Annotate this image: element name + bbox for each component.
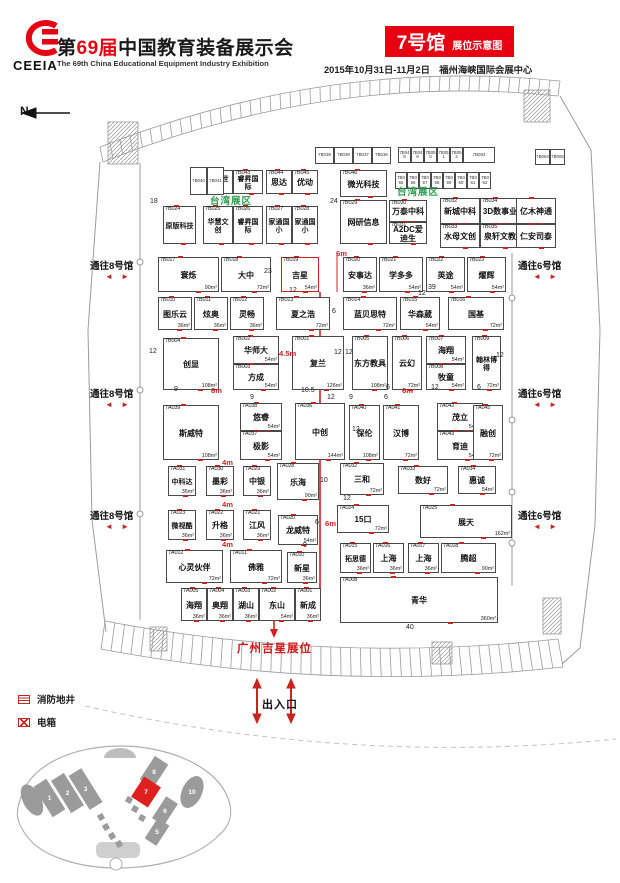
booth-7B033: 7B033水母文创	[440, 224, 480, 248]
mini-booth-7B059: 7B059	[443, 172, 455, 189]
overview-hall-label: 8	[152, 769, 156, 776]
booth-7B032: 7B032新城中科	[440, 198, 480, 224]
booth-7A011: 7A011佛雅72m²	[230, 550, 282, 583]
booth-7A016: 7A016上海36m²	[373, 543, 404, 573]
booth-7B023: 7B023燿辉54m²	[467, 257, 506, 292]
mini-booth-7B036: 7B036	[372, 147, 391, 164]
booth-7A031: 7A031中科达36m²	[168, 466, 196, 496]
booth-7B043: 7B043睿昇国际	[233, 170, 263, 194]
booth-7A003: 7A003湖山36m²	[233, 588, 259, 621]
booth-7A024: 7A02415口72m²	[337, 505, 389, 533]
mini-booth-7B052: 7B052	[450, 147, 463, 163]
mini-booth-7B039: 7B039	[315, 147, 334, 164]
booth-7A036: 7A036中创144m²	[295, 403, 345, 460]
booth-7A028: 7A028乐海90m²	[277, 463, 319, 500]
corridor-label-left: 通往8号馆	[90, 508, 133, 522]
booth-7A023: 7A023微视酷36m²	[168, 510, 196, 540]
dimension-label: 23	[264, 268, 272, 275]
dimension-label: 6	[386, 384, 390, 391]
corridor-label-left: 通往8号馆	[90, 258, 133, 272]
dimension-label: 6m	[325, 519, 336, 528]
dimension-label: 12	[343, 495, 351, 502]
booth-7A022: 7A022升格36m²	[206, 510, 234, 540]
booth-7A032: 7A032三和72m²	[340, 463, 384, 495]
overview-hall-label: 2	[66, 790, 70, 797]
booth-tw: 亿木神通	[516, 198, 556, 224]
dimension-label: 9	[250, 394, 254, 401]
booth-7B013: 7B013夏之浩72m²	[276, 297, 330, 330]
corridor-arrows-icon: ◄ ►	[105, 522, 132, 531]
booth-7A039: 7A039斯威特108m²	[163, 405, 219, 460]
booth-7A018: 7A018腾超90m²	[441, 543, 496, 573]
overview-hall-shape	[108, 832, 116, 840]
dimension-label: 12	[149, 348, 157, 355]
mini-booth-7B061: 7B061	[467, 172, 479, 189]
dimension-label: 6m	[336, 249, 347, 258]
legend: 消防地井 电箱	[18, 692, 75, 738]
booth-7B024: 7B024原版科技	[163, 206, 196, 244]
dimension-label: 6	[477, 384, 481, 391]
dimension-label: 24	[330, 198, 338, 205]
jixing-booth-callout: 广州吉星展位	[237, 640, 312, 656]
electric-box-icon	[18, 718, 30, 727]
corridor-arrows-icon: ◄ ►	[533, 400, 560, 409]
dimension-label: 12	[289, 287, 297, 294]
booth-7A025: 7A025展天162m²	[420, 505, 512, 538]
booth-7A038: 7A038悠睿54m²	[240, 403, 282, 431]
booth-7A010: 7A010新星36m²	[287, 552, 317, 583]
booth-7A021: 7A021江风36m²	[243, 510, 271, 540]
dimension-label: 6m	[402, 386, 413, 395]
dimension-label: 12	[418, 290, 426, 297]
booth-7A005: 7A005海翔36m²	[181, 588, 207, 621]
corridor-arrows-icon: ◄ ►	[105, 400, 132, 409]
mini-booth-7B038: 7B038	[334, 147, 353, 164]
corridor-arrows-icon: ◄ ►	[533, 522, 560, 531]
booth-7A030: 7A030墨彩36m²	[206, 466, 234, 496]
booth-7A033: 7A033数好72m²	[398, 466, 448, 494]
booth-7B004: 7B004创显108m²	[163, 338, 219, 390]
mini-booth-7B051: 7B051	[437, 147, 450, 163]
booth-7A004: 7A004奥翔36m²	[207, 588, 233, 621]
dimension-label: 4m	[222, 540, 233, 549]
overview-hall-shape	[138, 814, 146, 822]
floorplan-page: CEEIA 第69届中国教育装备展示会 The 69th China Educa…	[0, 0, 620, 883]
taiwan-zone-label: 台湾展区	[397, 184, 439, 198]
booth-7B025: 7B025华慧文创	[203, 206, 233, 244]
booth-7A017: 7A017上海36m²	[408, 543, 439, 573]
booth-7B029: 7B029网研信息	[340, 200, 387, 244]
booth-7B028: 7B028家通国小	[292, 206, 318, 244]
mini-booth-7B037: 7B037	[353, 147, 372, 164]
corridor-label-right: 通往6号馆	[518, 258, 561, 272]
booth-7A001: 7A001新成36m²	[295, 588, 321, 621]
mini-booth-7B048: 7B048	[398, 147, 411, 163]
booth-7A012: 7A012心灵伙伴72m²	[166, 550, 223, 583]
dimension-label: 4.5m	[279, 349, 296, 358]
overview-hall-label: 5	[155, 829, 159, 836]
booth-7B020: 7B020安事达36m²	[343, 257, 377, 292]
booth-7B027: 7B027家通国小	[266, 206, 292, 244]
booth-7B002: 7B002华师大54m²	[233, 336, 279, 364]
booth-7A045: 7A045融创72m²	[473, 405, 503, 460]
dimension-label: 9	[174, 386, 178, 393]
booth-7B034: 7B0343D数事业	[480, 198, 520, 224]
dimension-label: 12	[431, 384, 439, 391]
mini-booth-7B053: 7B053	[463, 147, 495, 163]
booth-7B006: 7B006云幻72m²	[392, 336, 422, 390]
mini-booth-7B062: 7B062	[479, 172, 491, 189]
outer-right-wall	[560, 96, 600, 664]
booth-7B014: 7B014蓝贝思特72m²	[343, 297, 397, 330]
mini-booth-7B040: 7B040	[190, 167, 207, 195]
booth-7B035: 7B035泉轩文教	[480, 224, 520, 248]
overview-hall-label: 6	[163, 808, 167, 815]
dimension-label: 6m	[211, 386, 222, 395]
booth-7A029: 7A029中银36m²	[243, 466, 271, 496]
north-arrow-icon	[22, 108, 70, 118]
booth-7B031: 7B031A2DC爱迪生	[389, 222, 427, 244]
booth-7A008: 7A008青华360m²	[340, 577, 498, 623]
booth-7A020: 7A020龙威特54m²	[278, 515, 318, 545]
dimension-label: 9	[303, 542, 307, 549]
fire-hydrant-icon	[18, 695, 30, 704]
dimension-label: 40	[406, 624, 414, 631]
corridor-arrows-icon: ◄ ►	[533, 272, 560, 281]
dimension-label: 12	[352, 426, 360, 433]
booth-7B026: 7B026睿昇国际	[233, 206, 263, 244]
booth-7B005: 7B005东方教具108m²	[352, 336, 388, 390]
dimension-label: 12	[496, 352, 504, 359]
entrance-label: 出入口	[262, 696, 298, 712]
dimension-label: 12	[345, 349, 353, 356]
overview-hall-label: 3	[84, 786, 88, 793]
overview-south-circle	[110, 858, 122, 870]
overview-hall-shape	[131, 805, 139, 813]
taiwan-zone-label: 台湾展区	[210, 193, 252, 207]
dimension-label: 6	[384, 394, 388, 401]
mini-booth-7B049: 7B049	[411, 147, 424, 163]
booth-7A002: 7A002东山54m²	[259, 588, 295, 621]
venue-overview-map: 123876510	[8, 742, 240, 874]
dimension-label: 10.5	[301, 387, 315, 394]
legend-item-fire: 消防地井	[18, 692, 75, 706]
booth-7B011: 7B011炫奥36m²	[194, 297, 228, 330]
corridor-label-right: 通往6号馆	[518, 386, 561, 400]
dimension-label: 12	[334, 349, 342, 356]
mini-booth-7B050: 7B050	[424, 147, 437, 163]
legend-item-electric: 电箱	[18, 715, 75, 729]
dimension-label: 4m	[222, 458, 233, 467]
mini-booth-7B041: 7B041	[207, 167, 224, 195]
booth-7B015: 7B015华森葳54m²	[400, 297, 440, 330]
booth-7A034: 7A034惠诚54m²	[458, 466, 496, 494]
dimension-label: 18	[150, 198, 158, 205]
dimension-label: 4m	[222, 500, 233, 509]
overview-hall-label: 1	[48, 795, 52, 802]
booth-7B017: 7B017寰烁90m²	[158, 257, 219, 292]
mini-booth-7B060: 7B060	[455, 172, 467, 189]
booth-7B046: 7B046微光科技	[340, 170, 387, 197]
booth-7B044: 7B044思达	[266, 170, 292, 194]
booth-7B007: 7B007海翔54m²	[426, 336, 466, 364]
booth-7A015: 7A015拓思德36m²	[340, 543, 371, 573]
booth-7B030: 7B030万泰中科	[389, 200, 427, 222]
overview-dome	[104, 748, 136, 758]
overview-hall-shape	[97, 813, 105, 821]
booth-7B021: 7B021学多多54m²	[379, 257, 423, 292]
dimension-label: 6	[332, 308, 336, 315]
dimension-label: 39	[428, 284, 436, 291]
dimension-label: 12	[327, 394, 335, 401]
booth-7B019: 7B019吉星54m²	[281, 257, 319, 292]
dimension-label: 9	[349, 394, 353, 401]
corridor-arrows-icon: ◄ ►	[105, 272, 132, 281]
dimension-label: 10	[320, 477, 328, 484]
booth-7A041: 7A041汉博72m²	[383, 405, 419, 460]
booth-7B001: 7B001复兰126m²	[292, 336, 344, 390]
booth-7B009: 7B009翰林博得72m²	[472, 336, 501, 390]
corridor-label-left: 通往8号馆	[90, 386, 133, 400]
booth-7A037: 7A037极影54m²	[240, 431, 282, 460]
mini-booth-7B064: 7B064	[535, 149, 550, 165]
booth-tw: 仁安司泰	[516, 224, 556, 248]
booth-7B016: 7B016国基72m²	[448, 297, 504, 330]
overview-hall-label: 7	[144, 789, 148, 796]
overview-hall-shape	[102, 823, 110, 831]
overview-hall-label: 10	[188, 789, 196, 796]
mini-booth-7B065: 7B065	[550, 149, 565, 165]
booth-7B012: 7B012灵畅36m²	[230, 297, 264, 330]
corridor-label-right: 通往6号馆	[518, 508, 561, 522]
dimension-label: 6	[315, 519, 319, 526]
booth-7B010: 7B010图乐云36m²	[158, 297, 192, 330]
booth-7B003: 7B003方成54m²	[233, 364, 279, 390]
booth-7B045: 7B045优动	[292, 170, 318, 194]
